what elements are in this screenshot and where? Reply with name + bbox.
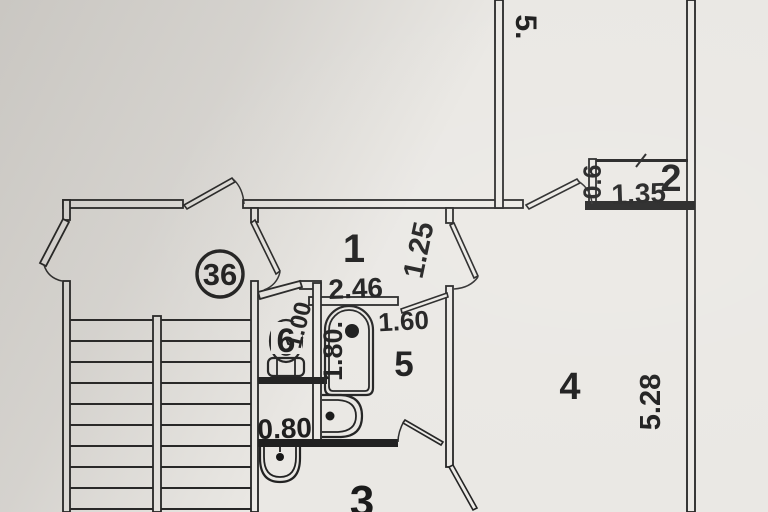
door-arc xyxy=(454,277,478,289)
sink-tap-dot xyxy=(276,453,284,461)
dim-top-room-height: 5. xyxy=(509,14,542,39)
walls xyxy=(40,0,695,512)
dim-bathtub-length: 1.80. xyxy=(318,321,348,381)
wall xyxy=(63,200,70,220)
dim-hall-width: 2.46 xyxy=(328,272,384,305)
apartment-number: 36 xyxy=(203,257,237,292)
stairs xyxy=(70,316,251,512)
wall xyxy=(687,0,695,512)
wall xyxy=(243,200,523,208)
labels: 36 1 2 3 4 5 6 2.46 1.35 1.60 0.80 1.25 … xyxy=(197,14,682,512)
floor-plan-drawing: 36 1 2 3 4 5 6 2.46 1.35 1.60 0.80 1.25 … xyxy=(0,0,768,512)
room4-left-wall xyxy=(446,286,453,467)
stairwell-left-wall xyxy=(63,281,70,512)
wall xyxy=(63,200,183,208)
door-leaf xyxy=(449,465,477,510)
floor-plan-photo: 36 1 2 3 4 5 6 2.46 1.35 1.60 0.80 1.25 … xyxy=(0,0,768,512)
wall xyxy=(495,0,503,208)
dim-room4-height: 5.28 xyxy=(635,374,667,430)
stair-flight-divider xyxy=(153,316,161,512)
landing-angled-wall xyxy=(40,219,69,266)
sink-tap-dot xyxy=(326,412,335,421)
dim-corridor-width: 1.25 xyxy=(398,219,441,281)
door-leaf xyxy=(450,223,478,278)
door-leaf xyxy=(251,220,280,274)
landing-door-arc xyxy=(44,265,62,281)
door-arc xyxy=(398,421,404,442)
dim-closet-depth: 0.6 xyxy=(579,165,607,200)
wc-bottom-wall xyxy=(251,377,327,384)
room-label-1: 1 xyxy=(343,227,365,271)
sink-icon xyxy=(260,447,300,482)
room-label-5: 5 xyxy=(394,345,413,384)
door-leaf xyxy=(526,179,580,209)
room-label-4: 4 xyxy=(559,366,580,408)
apartment-number-badge: 36 xyxy=(197,251,243,297)
sink-icon xyxy=(322,395,362,437)
wall xyxy=(446,208,453,223)
door-leaf xyxy=(403,420,443,445)
dim-bath-door: 1.60 xyxy=(377,305,429,338)
room-label-3: 3 xyxy=(350,477,374,512)
door-leaf xyxy=(184,178,235,209)
dim-storage-width: 0.80 xyxy=(257,412,313,445)
doors xyxy=(184,178,592,510)
dim-closet-width: 1.35 xyxy=(611,177,667,210)
stairwell-right-wall xyxy=(251,281,258,512)
dim-wc-width: 1.00 xyxy=(280,299,318,351)
